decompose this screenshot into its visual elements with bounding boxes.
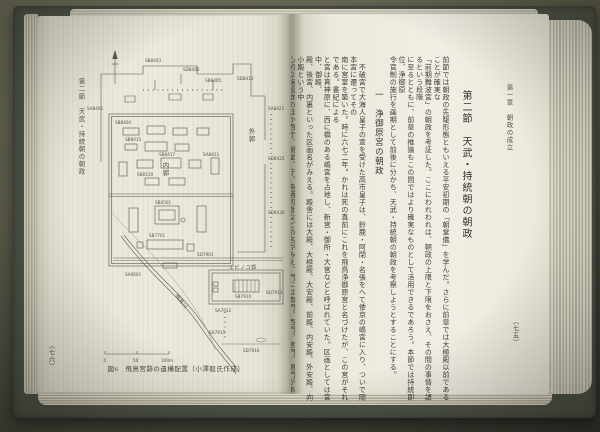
inner-enclosure (109, 114, 233, 266)
feature-label: SA8431 (203, 152, 220, 157)
outer-enclosure-label: 外郭 (245, 128, 255, 152)
right-page: 第一章 朝政の成立 （七五） 第二節 天武・持統朝の朝政 前節では朝政の先駆形態… (289, 14, 549, 394)
feature-label: SB8403 (145, 58, 162, 63)
inner-buildings-south (129, 206, 206, 268)
north-arrow-icon (112, 50, 119, 84)
feature-label: SD8406 (183, 67, 200, 72)
outer-enclosure-lines (101, 64, 271, 252)
feature-label: SD7901 (197, 252, 214, 257)
feature-labels: SB8403 SD8406 SB8405 SA8401 SD8410 SA842… (87, 58, 285, 353)
feature-label: SA7912 (215, 308, 232, 313)
inner-buildings-north (119, 126, 219, 185)
left-page: 第二節 天武・持統朝の朝政 （七六） (37, 16, 289, 392)
site-plan-figure: 0 50 100m SB8403 SD8406 SB8405 SA8401 SD… (85, 44, 285, 376)
scale-fifty: 50 (133, 358, 139, 363)
page-stack-fore-edge (548, 20, 592, 394)
left-margin-header: 第二節 天武・持統朝の朝政 (75, 78, 85, 238)
right-running-header: 第一章 朝政の成立 (503, 84, 513, 194)
scale-bar: 0 50 100m (104, 351, 174, 363)
inner-enclosure-label: 内郭 (159, 162, 169, 186)
feature-label: SD8410 (237, 76, 254, 81)
ebinoko-enclosure (209, 270, 283, 344)
scale-hundred: 100m (161, 358, 173, 363)
ebinoko-enclosure-label: エビノコ郭 (229, 264, 257, 271)
right-page-text: 第二節 天武・持統朝の朝政 前節では朝政の先駆形態ともいえる平安初期の「朝堂儀」… (291, 56, 473, 408)
subsection-title: 一 浄御原宮の朝政 (372, 56, 385, 408)
feature-label: SK8119 (137, 172, 153, 177)
river-path (111, 212, 239, 374)
right-page-number: （七五） (509, 318, 519, 358)
feature-label: SB8405 (205, 78, 222, 83)
ditch-line (113, 258, 283, 261)
feature-label: SB8417 (159, 152, 176, 157)
scale-zero: 0 (104, 358, 107, 363)
feature-label: SB8415 (125, 137, 142, 142)
feature-label: SA8401 (87, 106, 104, 111)
page-stack-left-edge (24, 14, 38, 394)
intro-paragraph: 前節では朝政の先駆形態ともいえる平安初期の「朝堂儀」を学んだ。さらに前章では大極… (388, 56, 450, 408)
river-label: 飛鳥川 (173, 293, 189, 310)
feature-label: SD7916 (243, 348, 260, 353)
feature-label: SA0601 (125, 272, 142, 277)
gutter-shadow (278, 14, 304, 394)
feature-label: SB0501 (155, 200, 172, 205)
feature-label: SB7701 (149, 233, 166, 238)
feature-label: SB8404 (115, 120, 132, 125)
figure-caption: 図6 飛鳥宮跡の遺構配置（小澤毅氏作成） (81, 363, 271, 373)
left-page-number: （七六） (45, 342, 55, 382)
feature-label: SB7910 (235, 294, 252, 299)
section-title: 第二節 天武・持統朝の朝政 (458, 56, 473, 408)
feature-label: SA7915 (209, 330, 226, 335)
